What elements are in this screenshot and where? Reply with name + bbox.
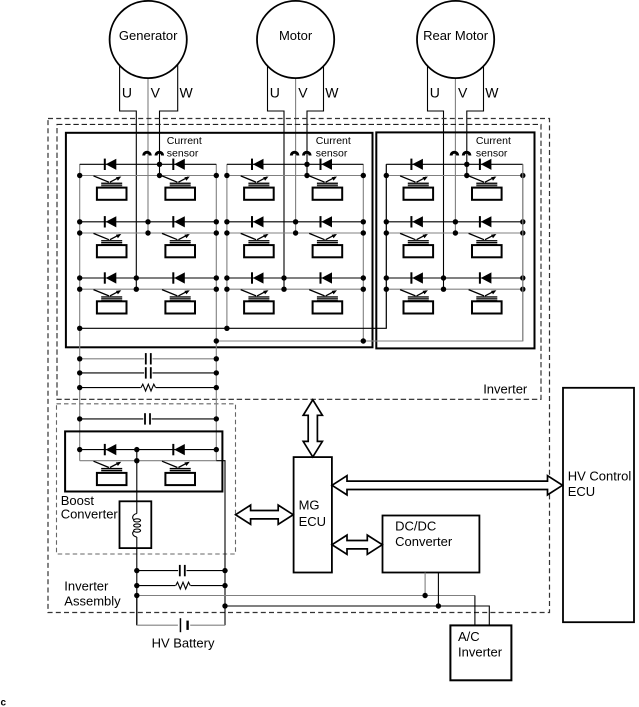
svg-text:W: W <box>180 85 194 101</box>
svg-text:Rear Motor: Rear Motor <box>423 28 489 43</box>
svg-text:W: W <box>325 85 339 101</box>
svg-text:sensor: sensor <box>476 148 508 160</box>
svg-text:Current: Current <box>316 135 351 147</box>
svg-text:V: V <box>151 85 161 101</box>
svg-text:sensor: sensor <box>316 148 348 160</box>
svg-text:ECU: ECU <box>568 484 595 499</box>
svg-text:Converter: Converter <box>61 507 119 522</box>
svg-text:V: V <box>298 85 308 101</box>
svg-text:HV Control: HV Control <box>568 469 632 484</box>
svg-text:Current: Current <box>476 135 511 147</box>
svg-text:W: W <box>485 85 499 101</box>
svg-text:ECU: ECU <box>299 514 326 529</box>
svg-text:U: U <box>430 85 440 101</box>
svg-text:c: c <box>1 698 7 707</box>
svg-text:Assembly: Assembly <box>64 594 121 609</box>
svg-text:Generator: Generator <box>119 28 178 43</box>
svg-text:Motor: Motor <box>279 28 313 43</box>
svg-text:Inverter: Inverter <box>483 382 528 397</box>
svg-text:sensor: sensor <box>167 148 199 160</box>
svg-text:Inverter: Inverter <box>64 579 109 594</box>
svg-text:HV Battery: HV Battery <box>152 635 215 650</box>
svg-text:DC/DC: DC/DC <box>395 519 436 534</box>
svg-text:MG: MG <box>299 498 320 513</box>
svg-text:U: U <box>270 85 280 101</box>
svg-text:Inverter: Inverter <box>458 645 503 660</box>
svg-text:U: U <box>122 85 132 101</box>
svg-text:A/C: A/C <box>458 629 480 644</box>
svg-text:Converter: Converter <box>395 534 453 549</box>
svg-text:V: V <box>458 85 468 101</box>
svg-text:Current: Current <box>167 135 202 147</box>
